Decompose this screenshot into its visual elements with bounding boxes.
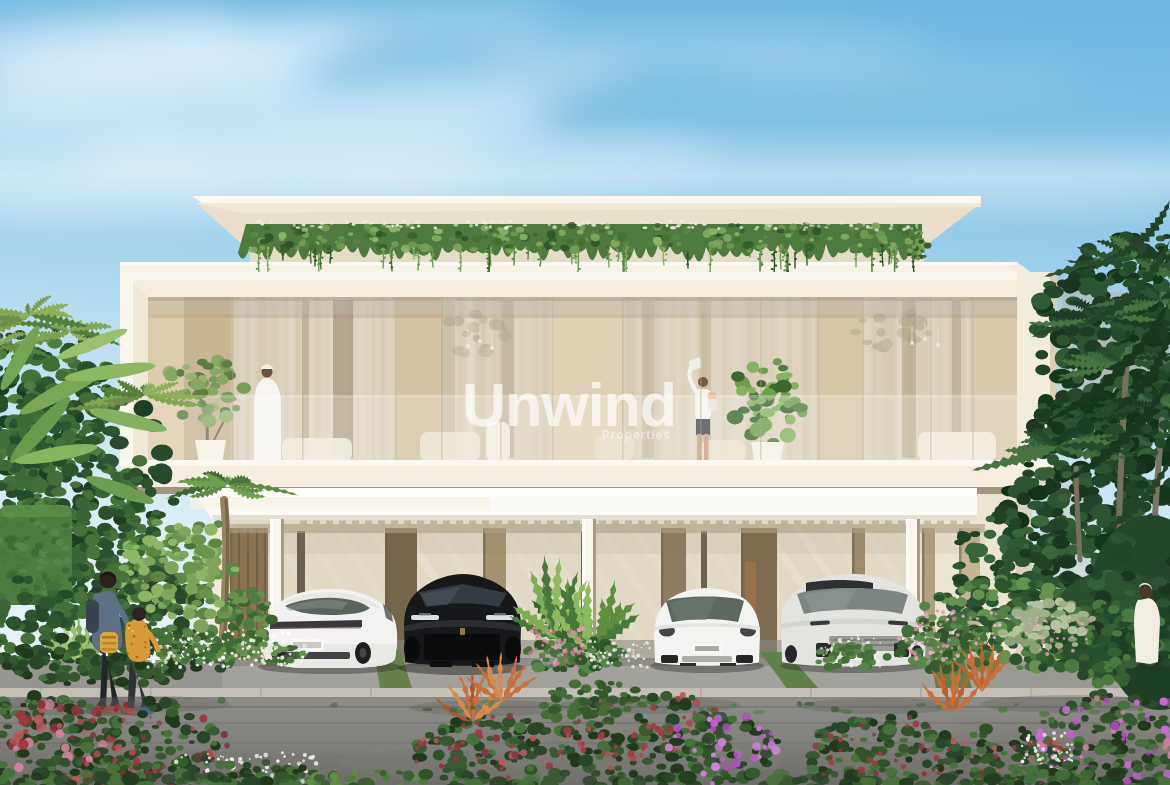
svg-text:Properties: Properties bbox=[602, 428, 671, 442]
